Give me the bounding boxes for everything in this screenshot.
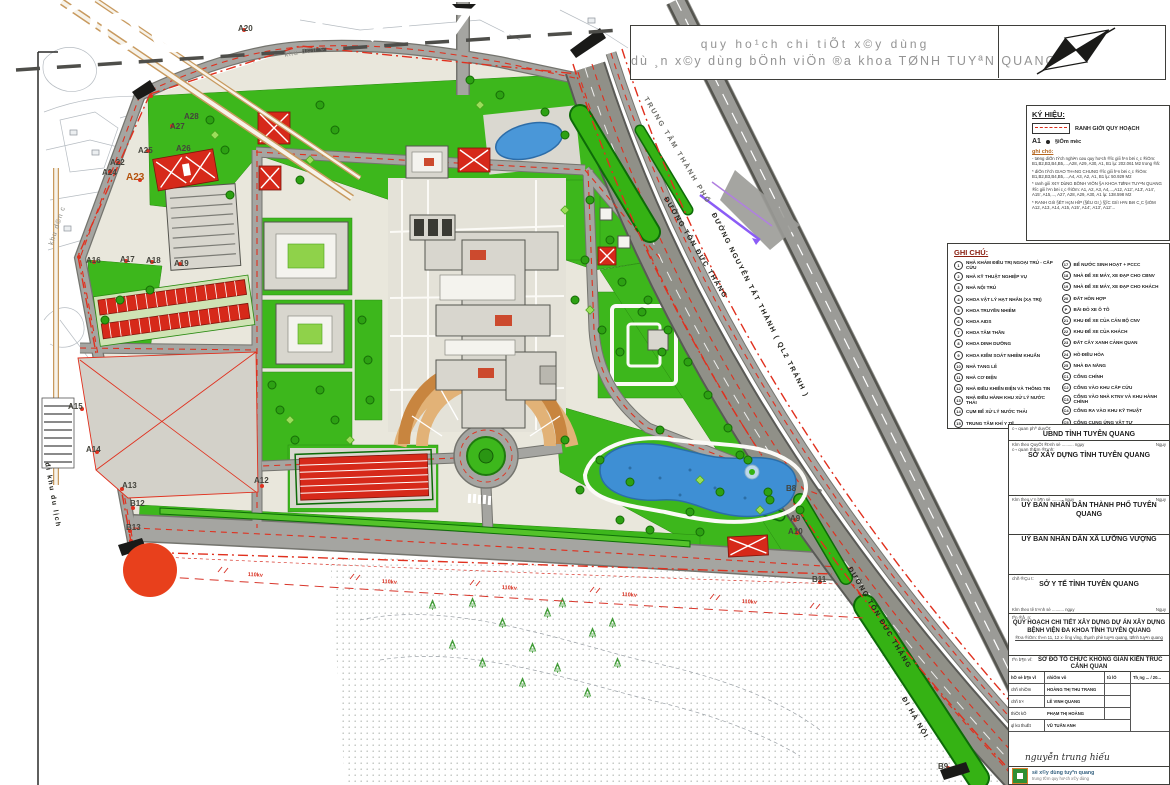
note-item: 7KHOA TÂM THẦN [954, 328, 1056, 337]
signature-table-header: tû lÖ [1105, 672, 1131, 684]
note-item-number: 5 [954, 306, 963, 315]
signature-scale-cell [1105, 696, 1131, 708]
investor-date: Ngµy [1156, 607, 1166, 612]
note-item: 21KHU ĐỂ XE CỦA CÁN BỘ CNV [1062, 316, 1164, 325]
signature-name: HOÀNG THỊ THU TRANG [1045, 684, 1105, 696]
note-item-label: KHU ĐỂ XE CỦA KHÁCH [1074, 329, 1128, 334]
auction-parcel [78, 352, 258, 498]
note-item-number: 23 [1062, 338, 1071, 347]
note-item-number: 15 [954, 419, 963, 428]
drawing-title-line1: quy ho¹ch chi tiÕt x©y dùng [631, 37, 999, 51]
project-title: QUY HOẠCH CHI TIẾT XÂY DỰNG DỰ ÁN XÂY DỰ… [1012, 620, 1166, 635]
signature-role: chñ tr× [1009, 696, 1045, 708]
drawing-title-line2: dù ¸n x©y dùng bÖnh viÖn ®a khoa TØNH TU… [631, 54, 999, 68]
signature-table-header: hÖ sè b¶n vÏ [1009, 672, 1045, 684]
signature-date-cell [1131, 684, 1169, 732]
investor-org: SỞ Y TẾ TỈNH TUYÊN QUANG [1012, 581, 1166, 590]
city-date: Ngµy [1156, 497, 1166, 502]
note-item: C3CỔNG VÀO NHÀ KTNV VÀ KHU HÀNH CHÍNH [1062, 394, 1164, 404]
note-item-number: 24 [1062, 350, 1071, 359]
note-item-number: 20 [1062, 294, 1071, 303]
investor-row: chñ ®Çu t­: SỞ Y TẾ TỈNH TUYÊN QUANG KÌm… [1009, 575, 1169, 614]
legend-notes-title: ghi chó: [1032, 149, 1164, 155]
note-item-label: ĐẤT CÂY XANH CẢNH QUAN [1074, 340, 1138, 345]
signature-scale-cell [1105, 684, 1131, 696]
note-item: 24HỒ ĐIỀU HÒA [1062, 350, 1164, 359]
notes-title: GHI CHÚ: [954, 248, 1163, 257]
note-item-label: CỔNG CHÍNH [1074, 374, 1104, 379]
note-item-number: C4 [1062, 406, 1071, 415]
note-item-label: KHU ĐỂ XE CỦA CÁN BỘ CNV [1074, 318, 1140, 323]
note-item-number: 3 [954, 283, 963, 292]
note-item-number: C2 [1062, 383, 1071, 392]
legend-note: - tæng diÖn tÝch nghiªn cøu quy ho¹ch ®­… [1032, 156, 1164, 167]
note-item-label: NHÀ ĐIỀU HÀNH KHU XỬ LÝ NƯỚC THẢI [966, 395, 1056, 405]
project-location: ®Þa ®iÓm: th«n 11, 12 x· l­ìng v­îng, th… [1012, 635, 1166, 640]
note-item: PBÃI ĐỖ XE Ô TÔ [1062, 305, 1164, 314]
appraisal-org: SỞ XÂY DỰNG TỈNH TUYÊN QUANG [1012, 452, 1166, 461]
note-item-label: ĐẤT HỖN HỢP [1074, 296, 1107, 301]
note-item: 8KHOA DINH DƯỠNG [954, 339, 1056, 348]
note-item-number: 25 [1062, 361, 1071, 370]
notes-column-right: 17BỂ NƯỚC SINH HOẠT + PCCC18NHÀ ĐỂ XE MÁ… [1062, 260, 1164, 429]
note-item: 23ĐẤT CÂY XANH CẢNH QUAN [1062, 338, 1164, 347]
city-org: UỶ BAN NHÂN DÂN THÀNH PHỐ TUYÊN QUANG [1012, 502, 1166, 520]
note-item-number: 13 [954, 396, 963, 405]
note-item-label: KHOA KIỂM SOÁT NHIỄM KHUẨN [966, 353, 1040, 358]
title-block: c¬ quan phª duyÖt: UBND TỈNH TUYÊN QUANG… [1008, 424, 1170, 785]
note-item-label: KHOA TRUYỀN NHIỄM [966, 308, 1016, 313]
note-item-label: NHÀ KỸ THUẬT NGHIỆP VỤ [966, 274, 1027, 279]
note-item-number: 19 [1062, 282, 1071, 291]
note-item-number: 2 [954, 272, 963, 281]
note-item-number: 21 [1062, 316, 1071, 325]
note-item-number: 11 [954, 373, 963, 382]
note-item-number: 4 [954, 295, 963, 304]
note-item-number: 18 [1062, 271, 1071, 280]
footer-org-line2: trung t©m quy ho¹ch x©y dùng [1032, 776, 1094, 781]
investor-note: KÌm theo tê tr×nh sè .......... ngµy [1012, 607, 1075, 612]
signature-scale-cell [1105, 708, 1131, 720]
signature-area: nguyễn trung hiếu [1009, 732, 1169, 767]
note-item-number: 7 [954, 328, 963, 337]
approval-org: UBND TỈNH TUYÊN QUANG [1012, 431, 1166, 440]
note-item-label: NHÀ TANG LỄ [966, 364, 997, 369]
signature-name: VŨ TUẤN ANH [1045, 720, 1105, 732]
title-banner: quy ho¹ch chi tiÕt x©y dùng dù ¸n x©y dù… [630, 25, 1166, 80]
marker-label: §iÓm mèc [1055, 139, 1081, 145]
note-item-number: 1 [954, 261, 963, 270]
annotation-red-dot [123, 543, 177, 597]
drawing-name: SƠ ĐỒ TỔ CHỨC KHÔNG GIAN KIẾN TRÚC CẢNH … [1012, 657, 1166, 672]
note-item-number: 10 [954, 362, 963, 371]
note-item-label: KHOA TÂM THẦN [966, 330, 1005, 335]
notes-column-left: 1NHÀ KHÁM ĐIỀU TRỊ NGOẠI TRÚ - CẤP CỨU2N… [954, 260, 1056, 429]
signature-name: PHẠM THỊ HOÀNG [1045, 708, 1105, 720]
commune-row: UỶ BAN NHÂN DÂN XÃ LƯỠNG VƯỢNG [1009, 535, 1169, 574]
note-item-label: CỔNG VÀO KHU CẤP CỨU [1074, 385, 1133, 390]
note-item-label: NHÀ ĐỂ XE MÁY, XE ĐẠP CHO KHÁCH [1074, 284, 1159, 289]
legend-note: * ranh giíi X¢Y DùNG BÖNH VIÖN §A KHOA T… [1032, 181, 1164, 197]
banner-divider [998, 26, 999, 78]
note-item: 5KHOA TRUYỀN NHIỄM [954, 306, 1056, 315]
north-arrow-icon [1021, 22, 1131, 82]
note-item-number: C1 [1062, 372, 1071, 381]
signature-table-header: Th¸ng ... / 20... [1131, 672, 1169, 684]
note-item-number: 12 [954, 384, 963, 393]
signature-table: hÖ sè b¶n vÏnhiÖm vôtû lÖTh¸ng ... / 20.… [1009, 672, 1169, 732]
note-item: 19NHÀ ĐỂ XE MÁY, XE ĐẠP CHO KHÁCH [1062, 282, 1164, 291]
handwritten-signature: nguyễn trung hiếu [1025, 753, 1110, 763]
legend-title: KÝ HIỆU: [1032, 110, 1164, 119]
note-item-label: NHÀ ĐIỀU KHIỂN ĐIỆN VÀ THÔNG TIN [966, 386, 1050, 391]
appraisal-row: KÌm theo QuyÕt ®Þnh sè .......... ngµy N… [1009, 441, 1169, 496]
note-item-number: 8 [954, 339, 963, 348]
legend-notes: - tæng diÖn tÝch nghiªn cøu quy ho¹ch ®­… [1032, 156, 1164, 210]
project-row: tªn ®å ¸n: QUY HOẠCH CHI TIẾT XÂY DỰNG D… [1009, 614, 1169, 655]
note-item-label: CỔNG RA VÀO KHU KỸ THUẬT [1074, 408, 1142, 413]
boundary-line-symbol [1032, 123, 1070, 134]
boundary-label: RANH GIỚI QUY HOẠCH [1075, 126, 1139, 132]
footer-row: së x©y dùng tuyªn quang trung t©m quy ho… [1009, 767, 1169, 784]
note-item-label: NHÀ NỘI TRÚ [966, 285, 996, 290]
note-item: C2CỔNG VÀO KHU CẤP CỨU [1062, 383, 1164, 392]
note-item: 10NHÀ TANG LỄ [954, 362, 1056, 371]
note-item: 13NHÀ ĐIỀU HÀNH KHU XỬ LÝ NƯỚC THẢI [954, 395, 1056, 405]
note-item: 3NHÀ NỘI TRÚ [954, 283, 1056, 292]
note-item-number: 14 [954, 407, 963, 416]
marker-dot-symbol [1046, 140, 1050, 144]
note-item: 2NHÀ KỸ THUẬT NGHIỆP VỤ [954, 272, 1056, 281]
drawing-caption: tªn b¶n vÏ: [1012, 657, 1033, 662]
note-item-label: TRUNG TÂM KHÍ Y TẾ [966, 421, 1014, 426]
note-item-label: CỤM BỂ XỬ LÝ NƯỚC THẢI [966, 409, 1027, 414]
appraisal-date: Ngµy [1156, 442, 1166, 447]
note-item-number: C3 [1062, 395, 1071, 404]
approval-row: c¬ quan phª duyÖt: UBND TỈNH TUYÊN QUANG [1009, 425, 1169, 441]
note-item: 14CỤM BỂ XỬ LÝ NƯỚC THẢI [954, 407, 1056, 416]
note-item: 6KHOA AIDS [954, 317, 1056, 326]
notes-panel: GHI CHÚ: 1NHÀ KHÁM ĐIỀU TRỊ NGOẠI TRÚ - … [947, 243, 1170, 429]
city-row: KÌm theo v¨n b¶n sè .......... ngµy Ngµy… [1009, 496, 1169, 535]
signature-role: ql kü thuËt [1009, 720, 1045, 732]
note-item-label: BỂ NƯỚC SINH HOẠT + PCCC [1074, 262, 1141, 267]
note-item: 25NHÀ ĐA NĂNG [1062, 361, 1164, 370]
note-item: C1CỔNG CHÍNH [1062, 372, 1164, 381]
note-item-number: P [1062, 305, 1071, 314]
note-item-label: NHÀ KHÁM ĐIỀU TRỊ NGOẠI TRÚ - CẤP CỨU [966, 260, 1056, 270]
note-item: 9KHOA KIỂM SOÁT NHIỄM KHUẨN [954, 351, 1056, 360]
note-item-label: KHOA VẬT LÝ HẠT NHÂN (XẠ TRỊ) [966, 297, 1042, 302]
note-item-number: 6 [954, 317, 963, 326]
legend-note: * RANH GIíI §ÊT HçN HîP (§ÊU GI¸) §¦îC G… [1032, 200, 1164, 211]
marker-code: A1 [1032, 138, 1041, 145]
org-logo [1012, 768, 1028, 784]
signature-role: thiÕt kÕ [1009, 708, 1045, 720]
note-item: 12NHÀ ĐIỀU KHIỂN ĐIỆN VÀ THÔNG TIN [954, 384, 1056, 393]
note-item: 17BỂ NƯỚC SINH HOẠT + PCCC [1062, 260, 1164, 269]
note-item-label: CỔNG VÀO NHÀ KTNV VÀ KHU HÀNH CHÍNH [1074, 394, 1164, 404]
note-item: 4KHOA VẬT LÝ HẠT NHÂN (XẠ TRỊ) [954, 295, 1056, 304]
note-item: 22KHU ĐỂ XE CỦA KHÁCH [1062, 327, 1164, 336]
note-item-label: HỒ ĐIỀU HÒA [1074, 352, 1105, 357]
note-item: 1NHÀ KHÁM ĐIỀU TRỊ NGOẠI TRÚ - CẤP CỨU [954, 260, 1056, 270]
roundabout [454, 424, 518, 488]
note-item-label: NHÀ CƠ ĐIỆN [966, 375, 997, 380]
note-item: 18NHÀ ĐỂ XE MÁY, XE ĐẠP CHO CBNV [1062, 271, 1164, 280]
note-item: C4CỔNG RA VÀO KHU KỸ THUẬT [1062, 406, 1164, 415]
signature-table-row: hÖ sè b¶n vÏnhiÖm vôtû lÖTh¸ng ... / 20.… [1009, 672, 1169, 732]
note-item: 11NHÀ CƠ ĐIỆN [954, 373, 1056, 382]
signature-table-header: nhiÖm vô [1045, 672, 1105, 684]
legend-note: * diÖn tÝch GIAO TH«NG CHUNG ®­îc giíi h… [1032, 169, 1164, 180]
left-hatched-strip [42, 398, 74, 468]
note-item-label: BÃI ĐỖ XE Ô TÔ [1074, 307, 1110, 312]
note-item-label: KHOA AIDS [966, 319, 991, 324]
note-item: 20ĐẤT HỖN HỢP [1062, 294, 1164, 303]
note-item-number: 9 [954, 351, 963, 360]
note-item-number: 22 [1062, 327, 1071, 336]
drawing-name-row: tªn b¶n vÏ: SƠ ĐỒ TỔ CHỨC KHÔNG GIAN KIẾ… [1009, 656, 1169, 672]
note-item-label: KHOA DINH DƯỠNG [966, 341, 1011, 346]
legend-panel: KÝ HIỆU: RANH GIỚI QUY HOẠCH A1 §iÓm mèc… [1026, 105, 1170, 241]
note-item-label: NHÀ ĐỂ XE MÁY, XE ĐẠP CHO CBNV [1074, 273, 1155, 278]
commune-org: UỶ BAN NHÂN DÂN XÃ LƯỠNG VƯỢNG [1012, 536, 1166, 545]
note-item-number: 17 [1062, 260, 1071, 269]
site-plan-page: TRUNG TÂM THÀNH PHỐĐƯỜNG TÔN ĐỨC THẮNGĐƯ… [0, 0, 1170, 785]
signature-scale-cell [1105, 720, 1131, 732]
note-item-label: NHÀ ĐA NĂNG [1074, 363, 1107, 368]
signature-role: chñ nhiÖm [1009, 684, 1045, 696]
signature-name: LÊ VINH QUANG [1045, 696, 1105, 708]
